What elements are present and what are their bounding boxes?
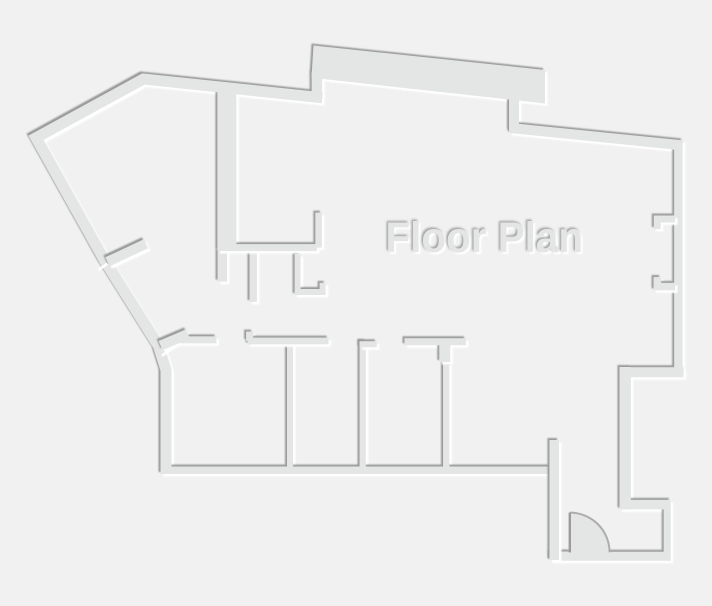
svg-text:Floor Plan: Floor Plan [386, 215, 584, 262]
